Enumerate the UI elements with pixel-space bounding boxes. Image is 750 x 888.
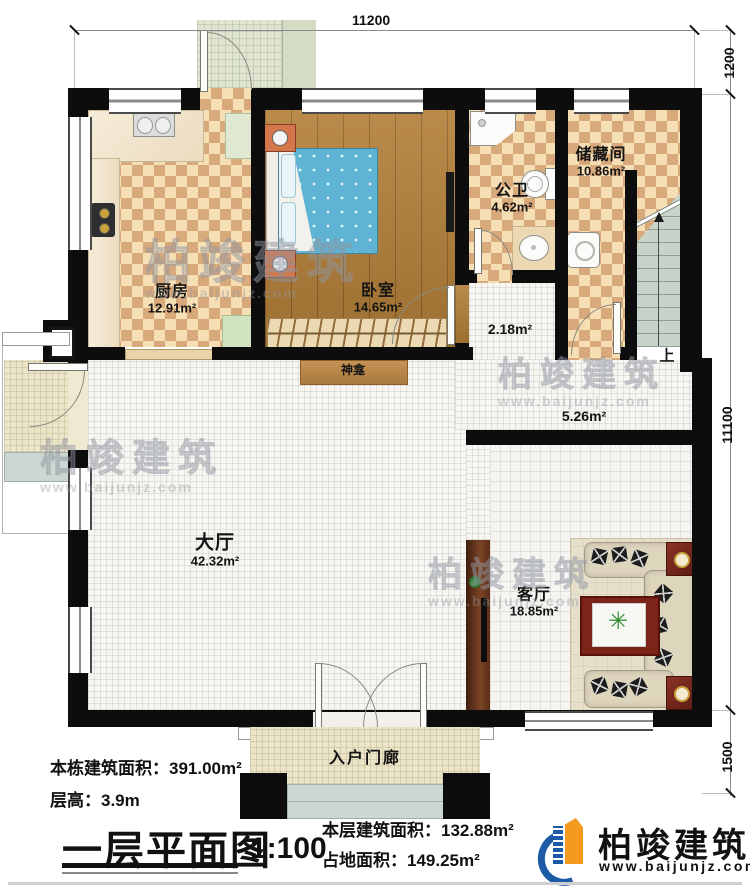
room-label-hall: 大厅 42.32m² [191, 533, 239, 570]
floor-area-value: 132.88m² [441, 821, 514, 840]
title-underline-thin [62, 872, 238, 874]
sofa-pillow [591, 548, 609, 566]
entry-porch-text: 入户门廊 [329, 750, 401, 768]
extension-line [700, 30, 730, 31]
corridor-large-label: 5.26m² [562, 408, 606, 424]
nightstand [264, 124, 296, 152]
stove-burner [99, 208, 110, 219]
living-name: 客厅 [510, 586, 558, 604]
kitchen-sink [133, 113, 175, 137]
wall-bedroom-right-stub [455, 343, 469, 360]
bath-sink [519, 235, 549, 261]
window-top-kitchen [109, 88, 181, 114]
logo-building-orange [565, 818, 583, 864]
extension-line [702, 793, 730, 794]
stairs-up-text: 上 [659, 347, 674, 364]
bathroom-area: 4.62m² [491, 201, 532, 216]
hall-floor [88, 360, 466, 710]
corridor-small-label: 2.18m² [488, 321, 532, 337]
window-left-hall-upper [68, 468, 92, 530]
coffee-table: ✳ [580, 596, 660, 656]
corner-table-medallion [674, 686, 690, 702]
wall-bath-storage [555, 110, 568, 360]
nightstand-knob [272, 256, 288, 272]
floor-height-value: 3.9m [101, 791, 140, 810]
corridor-small-area: 2.18m² [488, 321, 532, 337]
room-label-storage: 储藏间 10.86m² [575, 146, 626, 179]
building-area-label: 本栋建筑面积： [50, 759, 169, 778]
footer-divider [8, 882, 742, 885]
extension-line [712, 710, 730, 711]
kitchen-stove [91, 203, 115, 237]
extension-line [74, 30, 75, 88]
kitchen-area: 12.91m² [148, 302, 196, 317]
extension-line [702, 94, 730, 95]
window-top-bedroom [302, 88, 423, 114]
left-porch-step [4, 452, 70, 482]
wall-living-top [466, 430, 697, 445]
scale-text: 1:100 [250, 832, 327, 866]
land-area-label: 占地面积： [322, 851, 407, 870]
shrine-text: 神龛 [341, 364, 365, 378]
room-label-kitchen: 厨房 12.91m² [148, 283, 196, 316]
sofa-pillow [611, 546, 628, 563]
shower-drain [478, 119, 486, 127]
dimension-right-top-label: 1200 [721, 38, 737, 88]
dimension-line-top [74, 30, 694, 31]
window-top-bathroom [485, 88, 536, 114]
window-bottom-living [525, 711, 653, 731]
wall-right-upper [680, 88, 702, 372]
kitchen-name: 厨房 [148, 283, 196, 301]
dimension-top-label: 11200 [352, 12, 390, 28]
wall-bathroom-bottom [512, 270, 557, 283]
dimension-right-middle-label: 11100 [719, 395, 735, 455]
tv-wall-plant [469, 576, 481, 588]
logo-building-blue [553, 826, 563, 864]
wall-kitchen-bedroom [251, 110, 265, 360]
window-left-hall-lower [68, 607, 92, 673]
stairs-up-label: 上 [659, 347, 674, 364]
entry-column-right [443, 773, 490, 819]
stairs-center-line [658, 218, 659, 346]
kitchen-counter-left [88, 158, 120, 349]
bedroom-door-opening [455, 285, 469, 343]
room-label-bedroom: 卧室 14.65m² [354, 282, 402, 315]
corridor-large-area: 5.26m² [562, 408, 606, 424]
table-plant: ✳ [608, 610, 628, 634]
wall-bedroom-bottom [212, 347, 473, 360]
room-label-living: 客厅 18.85m² [510, 586, 558, 619]
dimension-right-bottom-label: 1500 [719, 732, 735, 782]
washing-machine [567, 232, 600, 268]
title-underline-thick [62, 863, 238, 868]
storage-name: 储藏间 [575, 146, 626, 164]
sink-basin-right [155, 117, 171, 134]
hall-name: 大厅 [191, 533, 239, 555]
building-area-value: 391.00m² [169, 759, 242, 778]
entry-porch-label: 入户门廊 [329, 750, 401, 768]
wall-kitchen-bottom [88, 347, 125, 360]
floor-height-line: 层高：3.9m [50, 786, 140, 811]
extension-line [694, 30, 695, 88]
floor-area-line: 本层建筑面积：132.88m² [322, 816, 514, 841]
storage-area: 10.86m² [575, 165, 626, 180]
bathroom-name: 公卫 [491, 182, 532, 200]
kitchen-threshold [125, 349, 214, 360]
stairs-arrow-head [654, 212, 664, 222]
window-sill-left-porch [2, 332, 70, 346]
kitchen-exit-mat [222, 315, 254, 349]
hall-area: 42.32m² [191, 554, 239, 569]
bed-pillow [281, 202, 296, 246]
nightstand [264, 250, 296, 278]
bed-pillow [281, 154, 296, 198]
living-entry-floor [466, 445, 490, 540]
building-area-line: 本栋建筑面积：391.00m² [50, 754, 242, 779]
washer-door [575, 241, 595, 261]
brand-logo: 柏竣建筑 www.baijunjz.com [540, 816, 740, 880]
stove-burner [99, 223, 110, 234]
kitchen-door-mat [225, 113, 254, 159]
wall-stairs [625, 170, 637, 347]
wall-right-lower [692, 372, 712, 727]
brand-url: www.baijunjz.com [599, 858, 750, 874]
wall-bedroom-right [455, 110, 469, 285]
shrine-label: 神龛 [341, 364, 365, 378]
living-tv [481, 598, 487, 662]
bedroom-tv [446, 172, 454, 232]
entry-column-left [240, 773, 287, 819]
brand-logo-icon [540, 816, 592, 876]
floor-height-label: 层高： [50, 791, 101, 810]
window-top-storage [574, 88, 629, 114]
sofa-pillow [611, 681, 628, 698]
window-left-kitchen [68, 117, 92, 250]
sink-basin-left [137, 117, 153, 134]
bedroom-area: 14.65m² [354, 301, 402, 316]
wall-stairs-stub [620, 347, 637, 360]
floor-area-label: 本层建筑面积： [322, 821, 441, 840]
room-label-bathroom: 公卫 4.62m² [491, 182, 532, 215]
nightstand-knob [272, 130, 288, 146]
floor-plan-page: ✳ [0, 0, 750, 888]
sink-drain [531, 245, 536, 250]
bedroom-name: 卧室 [354, 282, 402, 300]
living-area: 18.85m² [510, 605, 558, 620]
corner-table-medallion [674, 552, 690, 568]
wall-right-jog [680, 358, 712, 372]
land-area-line: 占地面积：149.25m² [322, 846, 480, 871]
land-area-value: 149.25m² [407, 851, 480, 870]
